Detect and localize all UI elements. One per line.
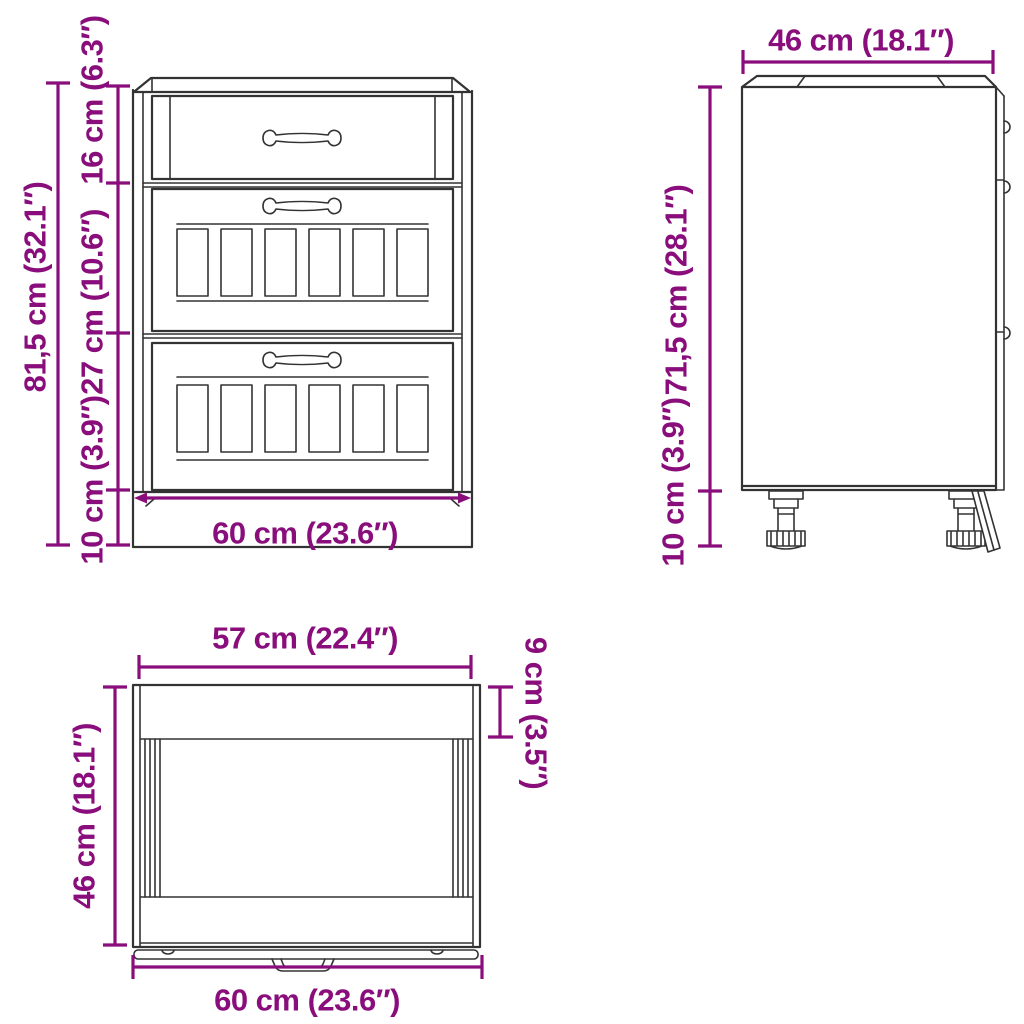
front-drawer-middle <box>152 189 453 331</box>
top-dim-inner-width: 57 cm (22.4″) <box>139 621 471 680</box>
cabinet-dimension-diagram: 81,5 cm (32.1″) 16 cm (6.3″) 27 cm (10.6… <box>0 0 1024 1024</box>
top-cabinet <box>133 685 480 971</box>
front-edge-strip <box>134 950 478 959</box>
dim-label-top-width: 60 cm (23.6″) <box>214 983 400 1018</box>
dim-line <box>139 655 471 679</box>
dim-label-plinth-height: 10 cm (3.9″) <box>75 395 110 564</box>
top-dim-front-depth: 9 cm (3.5″) <box>488 637 554 789</box>
dim-label-front-depth: 9 cm (3.5″) <box>519 637 554 789</box>
drawer-gap-line <box>143 183 462 187</box>
side-cabinet <box>742 76 1010 552</box>
foot-base-ribs <box>771 532 801 545</box>
drawer-handle <box>263 198 341 213</box>
side-dim-heights: 71,5 cm (28.1″) 10 cm (3.9″) <box>656 87 723 567</box>
drawer-panel-rails <box>177 377 428 460</box>
side-carcass-outline <box>742 76 996 490</box>
dim-line <box>103 687 127 945</box>
front-dim-total-height: 81,5 cm (32.1″) <box>18 83 71 545</box>
adjustable-foot-front <box>767 491 805 549</box>
foot-body <box>767 491 805 549</box>
handle-top-view <box>272 959 334 971</box>
foot-base-ribs <box>951 532 981 545</box>
dim-line <box>106 86 130 545</box>
front-view: 81,5 cm (32.1″) 16 cm (6.3″) 27 cm (10.6… <box>18 15 473 564</box>
drawer-handle <box>263 352 341 367</box>
drawer-panel-slats <box>177 385 428 452</box>
drawer-panel-slats <box>177 229 428 296</box>
dim-label-side-depth: 46 cm (18.1″) <box>768 23 954 58</box>
top-view: 57 cm (22.4″) 9 cm (3.5″) 46 cm (18.1″) … <box>67 621 554 1018</box>
front-drawer-top <box>152 96 453 179</box>
drawer-handle <box>263 130 341 145</box>
dim-label-top-drawer-height: 16 cm (6.3″) <box>75 15 110 184</box>
side-front-edge-strip <box>996 96 1004 490</box>
dim-line <box>698 87 722 546</box>
dim-label-middle-drawer-height: 27 cm (10.6″) <box>75 209 110 395</box>
top-outline <box>133 685 480 947</box>
drawer-gap-line <box>143 334 462 338</box>
dim-label-front-width: 60 cm (23.6″) <box>212 516 398 551</box>
drawer-slide-rails <box>145 739 468 897</box>
front-dim-width: 60 cm (23.6″) <box>134 493 471 551</box>
dim-label-inner-width: 57 cm (22.4″) <box>212 621 398 656</box>
dim-label-body-height: 71,5 cm (28.1″) <box>659 185 694 396</box>
drawer-panel-rails <box>177 224 428 301</box>
side-handle-knobs <box>1004 121 1010 339</box>
front-cabinet <box>133 78 472 547</box>
front-carcass-outline <box>133 78 472 547</box>
side-dim-depth: 46 cm (18.1″) <box>743 23 993 75</box>
front-dim-sections: 16 cm (6.3″) 27 cm (10.6″) 10 cm (3.9″) <box>75 15 131 564</box>
page: { "colors": { "dimension": "#8A0D7C", "l… <box>0 0 1024 1024</box>
dim-label-front-total-height: 81,5 cm (32.1″) <box>18 182 53 393</box>
top-dim-depth: 46 cm (18.1″) <box>67 687 128 945</box>
top-dim-width: 60 cm (23.6″) <box>133 955 482 1018</box>
dim-label-top-depth: 46 cm (18.1″) <box>67 723 102 909</box>
front-drawer-bottom <box>152 343 453 490</box>
dim-label-feet-height: 10 cm (3.9″) <box>656 397 691 566</box>
top-walls-and-bands <box>140 685 473 947</box>
side-view: 46 cm (18.1″) 71,5 cm (28.1″) 10 cm (3.9… <box>656 23 1011 567</box>
dim-line <box>488 687 513 737</box>
